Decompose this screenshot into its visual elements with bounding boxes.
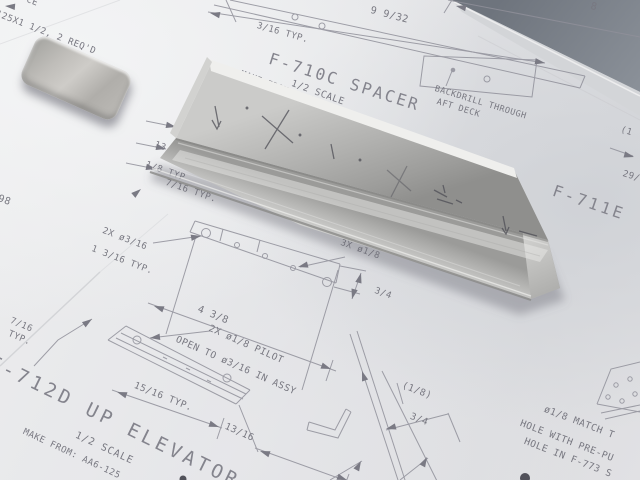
- angle-body: [150, 57, 560, 300]
- photo-of-engineering-drawings: CE -125X1 1/2, 2 REQ'D 9 9/32 8 3/16 TYP…: [0, 0, 640, 480]
- aluminum-angle-part: [0, 0, 640, 480]
